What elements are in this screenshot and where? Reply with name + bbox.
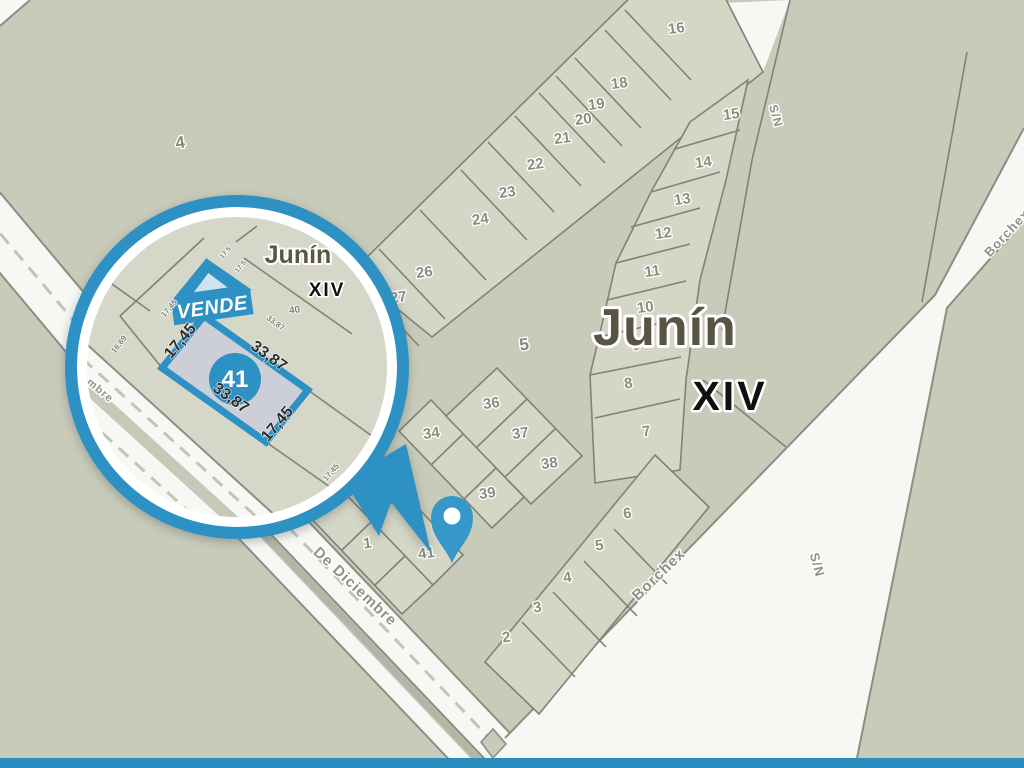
lot-number: 22 (526, 155, 545, 174)
lot-number: 18 (610, 74, 629, 93)
magnifier-junin-label: Junín (265, 241, 332, 269)
lot-number: 34 (422, 424, 442, 443)
lot-number: 16 (667, 19, 686, 38)
lot-number: 24 (471, 210, 491, 229)
cadastral-map: De DiciembreBorchexS/NS/NBorchex 45 1618… (0, 0, 1024, 768)
lot-number: 11 (643, 262, 661, 281)
lot-number: 15 (722, 105, 741, 124)
lot-number: 26 (415, 263, 434, 282)
lot-number: 14 (694, 153, 714, 172)
lot-number: 36 (482, 394, 501, 413)
lot-number: 12 (654, 224, 673, 243)
lot-number: 39 (478, 484, 497, 503)
lot-number: 21 (553, 129, 572, 148)
parcel-annotation: 40 (288, 304, 301, 317)
lot-number: 23 (498, 183, 517, 202)
lot-number: 38 (540, 454, 559, 473)
region-label-xiv: XIV (692, 373, 767, 419)
lot-number: 37 (511, 424, 530, 443)
region-label-junin: Junín (593, 299, 737, 357)
lot-number: 20 (574, 110, 593, 129)
lot-number: 13 (673, 190, 692, 209)
bottom-bar (0, 758, 1024, 768)
magnifier-xiv-label: XIV (309, 280, 346, 301)
